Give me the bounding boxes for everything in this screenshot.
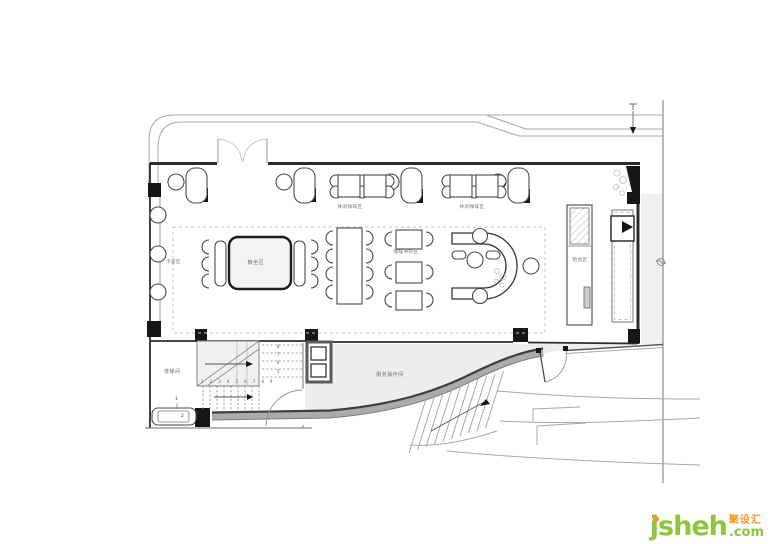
bench-callout-1: 1 [175,397,178,402]
stair-upper-tread-numbers: 8 7 6 5 [277,343,280,376]
booth-bench-tables [150,207,166,300]
elevator-shaft [307,342,331,382]
entry-door-swing [218,139,267,163]
floor-plan-canvas: 休闲咖啡区 休闲咖啡区 卡座区 散坐区 咖啡书吧区 吧台区 楼梯间 服务操作间 … [0,0,770,544]
label-service-room: 服务操作间 [376,372,404,378]
wall-counter [611,210,634,322]
floor-plan-drawing [0,0,770,544]
label-open-seating: 散坐区 [248,260,265,266]
watermark-suffix: .com [729,526,764,539]
label-stair-room: 楼梯间 [164,369,181,375]
u-shaped-bar [452,229,539,304]
stair-lower-tread-numbers: 1 2 3 4 5 6 7 8 9 [201,379,275,384]
watermark-brand: jsheh [650,513,727,540]
watermark: jsheh 聚设汇 .com [650,513,764,540]
bar-counter [567,205,592,325]
watermark-dot-icon [653,516,659,522]
four-seat-tables-b [442,175,506,198]
terrace-steps [410,391,700,465]
book-bar-tables [385,230,433,310]
label-coffee-book-bar: 咖啡书吧区 [394,250,419,256]
label-leisure-coffee-b: 休闲咖啡区 [460,205,485,211]
entry-bench [152,403,196,425]
bench-callout-2: 2 [181,414,184,419]
four-seat-tables-a [330,175,394,198]
communal-table [326,228,373,304]
label-bar-counter: 吧台区 [573,258,588,264]
label-booth-seating: 卡座区 [166,260,181,266]
label-leisure-coffee-a: 休闲咖啡区 [338,205,363,211]
